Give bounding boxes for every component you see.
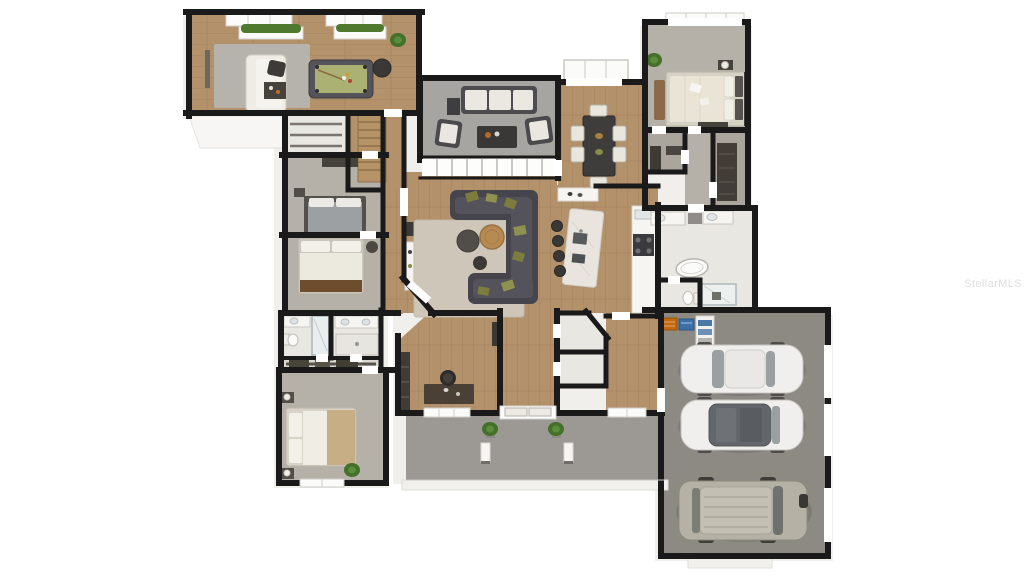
shelf-bin-1 — [698, 320, 712, 326]
suv-windshield — [773, 486, 783, 535]
mbath-toilet — [683, 292, 693, 305]
bed3-side-table — [366, 241, 378, 253]
shelf-bin-2 — [698, 329, 712, 335]
dining-chair-2 — [571, 147, 584, 162]
den-window — [424, 408, 470, 417]
door-gap-bath-2 — [350, 354, 362, 362]
door-gap-closet-2 — [709, 182, 717, 198]
door-gap-bath-1 — [316, 354, 328, 362]
dining-chair-head — [590, 105, 607, 116]
den-desk-item-2 — [456, 392, 460, 396]
burner-1 — [636, 238, 641, 243]
master-bench — [654, 80, 665, 120]
lanai-decor-1 — [485, 132, 491, 138]
bed2-nightstand — [294, 188, 305, 197]
bath2-sink-1 — [341, 319, 349, 325]
bath2-sink-2 — [362, 319, 370, 325]
watermark-text: StellarMLS — [964, 278, 1022, 290]
window-planter-2-greens — [336, 24, 384, 32]
master-pillow-dark-2 — [735, 99, 743, 120]
porch-column-1-base — [481, 461, 490, 464]
suv-rear-glass — [692, 488, 700, 533]
living-coffee-table — [480, 225, 504, 249]
lanai-sofa-cushion-3 — [513, 90, 533, 110]
lanai-decor-2 — [495, 132, 500, 137]
mbath-sink-2 — [707, 214, 717, 221]
pool-ball-red — [348, 79, 352, 83]
door-gap-master-2 — [688, 126, 701, 134]
door-gap-garage-entry — [657, 388, 665, 412]
dining-centerpiece-2 — [595, 149, 603, 155]
bed4-duvet — [303, 411, 327, 465]
floor-master-vestibule — [685, 130, 713, 210]
den-desk-item-1 — [444, 388, 449, 392]
kitchen-island — [562, 208, 604, 287]
dining-window-gap — [566, 78, 622, 86]
door-gap-toilet-room — [668, 276, 680, 284]
bed2-duvet — [308, 202, 362, 236]
bath1-toilet — [288, 334, 298, 346]
island-faucet — [579, 229, 583, 233]
car2-rear-glass — [772, 406, 780, 444]
closet-clothes-1 — [289, 360, 309, 368]
garage-door-2 — [824, 404, 832, 456]
master-lamp — [722, 62, 729, 69]
den-desk — [424, 384, 474, 404]
bed2-pillow-2 — [336, 198, 361, 207]
door-gap-master-bath — [688, 204, 704, 212]
bath1-sink — [290, 318, 298, 324]
door-gap-bedroom-4 — [362, 366, 378, 374]
burner-2 — [647, 238, 652, 243]
kitchen-range — [633, 234, 654, 256]
bar-stool-2 — [553, 236, 564, 247]
lanai-side-table — [447, 98, 460, 115]
door-gap-stairs — [384, 109, 402, 117]
suv-front-wheel-dark — [799, 494, 808, 508]
dining-chair-4 — [613, 147, 626, 162]
lanai-sofa-cushion-2 — [489, 90, 511, 110]
burner-3 — [636, 249, 641, 254]
closet1-hanging-clothes — [666, 146, 683, 155]
car1-roof — [725, 350, 765, 388]
closet2-wardrobe — [717, 143, 737, 201]
bed4-pillow-2 — [289, 439, 302, 463]
front-door-leaf-1 — [505, 408, 527, 416]
garage-toolchest-blue — [679, 319, 694, 330]
glass-door-band — [422, 159, 556, 176]
mbath-shower-head — [712, 292, 721, 300]
counter-appliance-1 — [568, 192, 573, 196]
door-gap-bedroom-2 — [362, 151, 378, 159]
door-gap-hall-living — [400, 188, 408, 216]
game-table-decor-1 — [269, 86, 273, 90]
door-gap-bedroom-3 — [360, 231, 376, 239]
bed3-pillow-2 — [332, 241, 361, 252]
door-gap-closet-1 — [681, 150, 689, 164]
bed3-duvet — [300, 253, 362, 280]
island-cooktop — [572, 253, 586, 263]
dining-table — [583, 116, 615, 176]
bed3-throw — [300, 280, 362, 292]
opening-lanai-dining — [554, 160, 562, 176]
console-decor-1 — [408, 250, 412, 254]
bed4-plant-lite — [348, 467, 356, 474]
door-gap-master-1 — [652, 126, 666, 134]
master-plant-lite — [650, 57, 658, 64]
car1-rear-glass — [766, 351, 775, 387]
front-door-leaf-2 — [529, 408, 551, 416]
door-gap-laundry — [553, 362, 561, 376]
car1-windshield — [712, 350, 724, 388]
floor-laundry — [557, 352, 606, 386]
bar-stool-1 — [552, 221, 563, 232]
kitchen-sink — [635, 210, 651, 219]
car2-sunroof-1 — [716, 408, 736, 442]
bed2-dresser — [322, 158, 358, 167]
lanai-chair-1-cushion — [439, 123, 458, 144]
dining-chair-1 — [571, 126, 584, 141]
porch-plant-1-lite — [486, 426, 494, 433]
game-round-table — [373, 59, 391, 77]
porch-fascia — [402, 480, 668, 490]
bar-stool-4 — [555, 266, 566, 277]
closet1-shelves — [650, 146, 661, 172]
car2-sunroof-2 — [740, 408, 762, 442]
floorplan-page: StellarMLS — [0, 0, 1024, 576]
porch-plant-2-lite — [552, 426, 560, 433]
door-gap-powder — [553, 324, 561, 338]
bed4-blanket — [327, 410, 355, 465]
floor-hall-2-planks — [606, 313, 661, 413]
bar-stool-3 — [554, 251, 565, 262]
bed3-pillow-1 — [301, 241, 330, 252]
game-coffee-table — [264, 82, 286, 99]
den-office-chair-seat — [443, 373, 453, 383]
bed2-pillow-1 — [309, 198, 334, 207]
bed4-lamp-1 — [284, 394, 290, 400]
floor-porch — [406, 413, 664, 480]
window-planter-1-greens — [241, 24, 301, 33]
lanai-chair-2-cushion — [529, 120, 549, 141]
master-pillow-dark-1 — [735, 76, 743, 97]
console-decor-2 — [408, 264, 412, 268]
counter-appliance-2 — [578, 193, 583, 197]
pool-ball-yellow — [345, 73, 349, 77]
dining-centerpiece-1 — [595, 133, 603, 139]
pool-pocket-4 — [363, 89, 367, 93]
door-gap-kitchen-hall2 — [612, 312, 630, 320]
pool-pocket-3 — [315, 89, 319, 93]
island-sink — [572, 232, 587, 244]
living-ottoman — [457, 230, 479, 252]
pool-ball-white — [342, 76, 346, 80]
burner-4 — [647, 249, 652, 254]
pool-pocket-1 — [315, 65, 319, 69]
game-corner-plant-lite — [394, 37, 402, 44]
mbath-mat — [688, 213, 702, 224]
porch-column-2 — [564, 443, 573, 462]
bed4-lamp-2 — [284, 470, 290, 476]
lanai-sofa-cushion-1 — [465, 90, 487, 110]
bath2-drain — [355, 342, 359, 346]
game-table-decor-2 — [276, 90, 280, 94]
floorplan-3d-render — [0, 0, 1024, 576]
master-window-gap — [668, 18, 742, 26]
garage-door-3 — [824, 488, 832, 542]
porch-column-1 — [481, 443, 490, 462]
master-pillow-white-2 — [724, 99, 734, 120]
game-wall-art — [205, 50, 210, 88]
pool-pocket-2 — [363, 65, 367, 69]
garage-door-1 — [824, 345, 832, 398]
lanai-coffee-table — [477, 126, 517, 148]
living-side-table — [473, 256, 487, 270]
master-pillow-white-1 — [724, 76, 734, 97]
porch-column-2-base — [564, 461, 573, 464]
dining-chair-3 — [613, 126, 626, 141]
bed4-pillow-1 — [289, 413, 302, 437]
